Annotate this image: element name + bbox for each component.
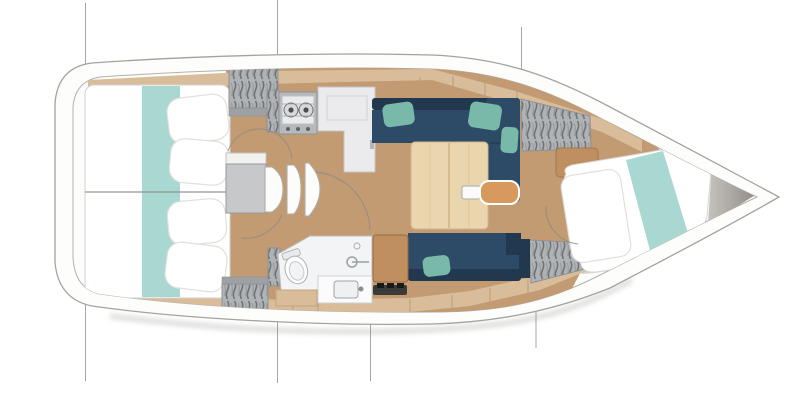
companionway-platform	[226, 164, 266, 213]
table-remote	[462, 186, 480, 199]
throw-pillow	[467, 101, 503, 132]
faucet	[359, 287, 364, 292]
storage-item	[387, 283, 394, 288]
boat-floorplan	[0, 0, 800, 403]
stove-knob	[306, 127, 310, 131]
storage-item	[377, 283, 384, 288]
sink	[334, 281, 358, 298]
head	[276, 236, 372, 306]
stove	[279, 92, 317, 134]
pillow	[168, 138, 230, 187]
head-cabinet	[276, 290, 317, 306]
locker-side-panel	[519, 239, 530, 278]
pillow	[165, 93, 230, 146]
ottoman	[480, 181, 519, 204]
stove-knob	[286, 127, 290, 131]
storage-item	[397, 283, 404, 288]
companionway-steps	[265, 163, 320, 216]
aft-cabin	[85, 85, 231, 298]
settee-starboard-end	[506, 233, 521, 255]
pillow	[166, 198, 228, 247]
pillow	[163, 241, 228, 294]
floorplan-canvas	[0, 0, 800, 403]
stove-knob	[296, 127, 300, 131]
burner-center	[303, 107, 308, 112]
pillow	[559, 168, 632, 264]
throw-pillow	[422, 254, 451, 277]
burner-center	[288, 107, 293, 112]
locker-shelf	[222, 277, 268, 284]
throw-pillow	[500, 126, 519, 153]
seat-cushion-cabinet	[373, 235, 408, 282]
throw-pillow	[382, 101, 416, 128]
hanging-locker	[267, 90, 279, 132]
companionway-cabinet	[226, 153, 266, 164]
